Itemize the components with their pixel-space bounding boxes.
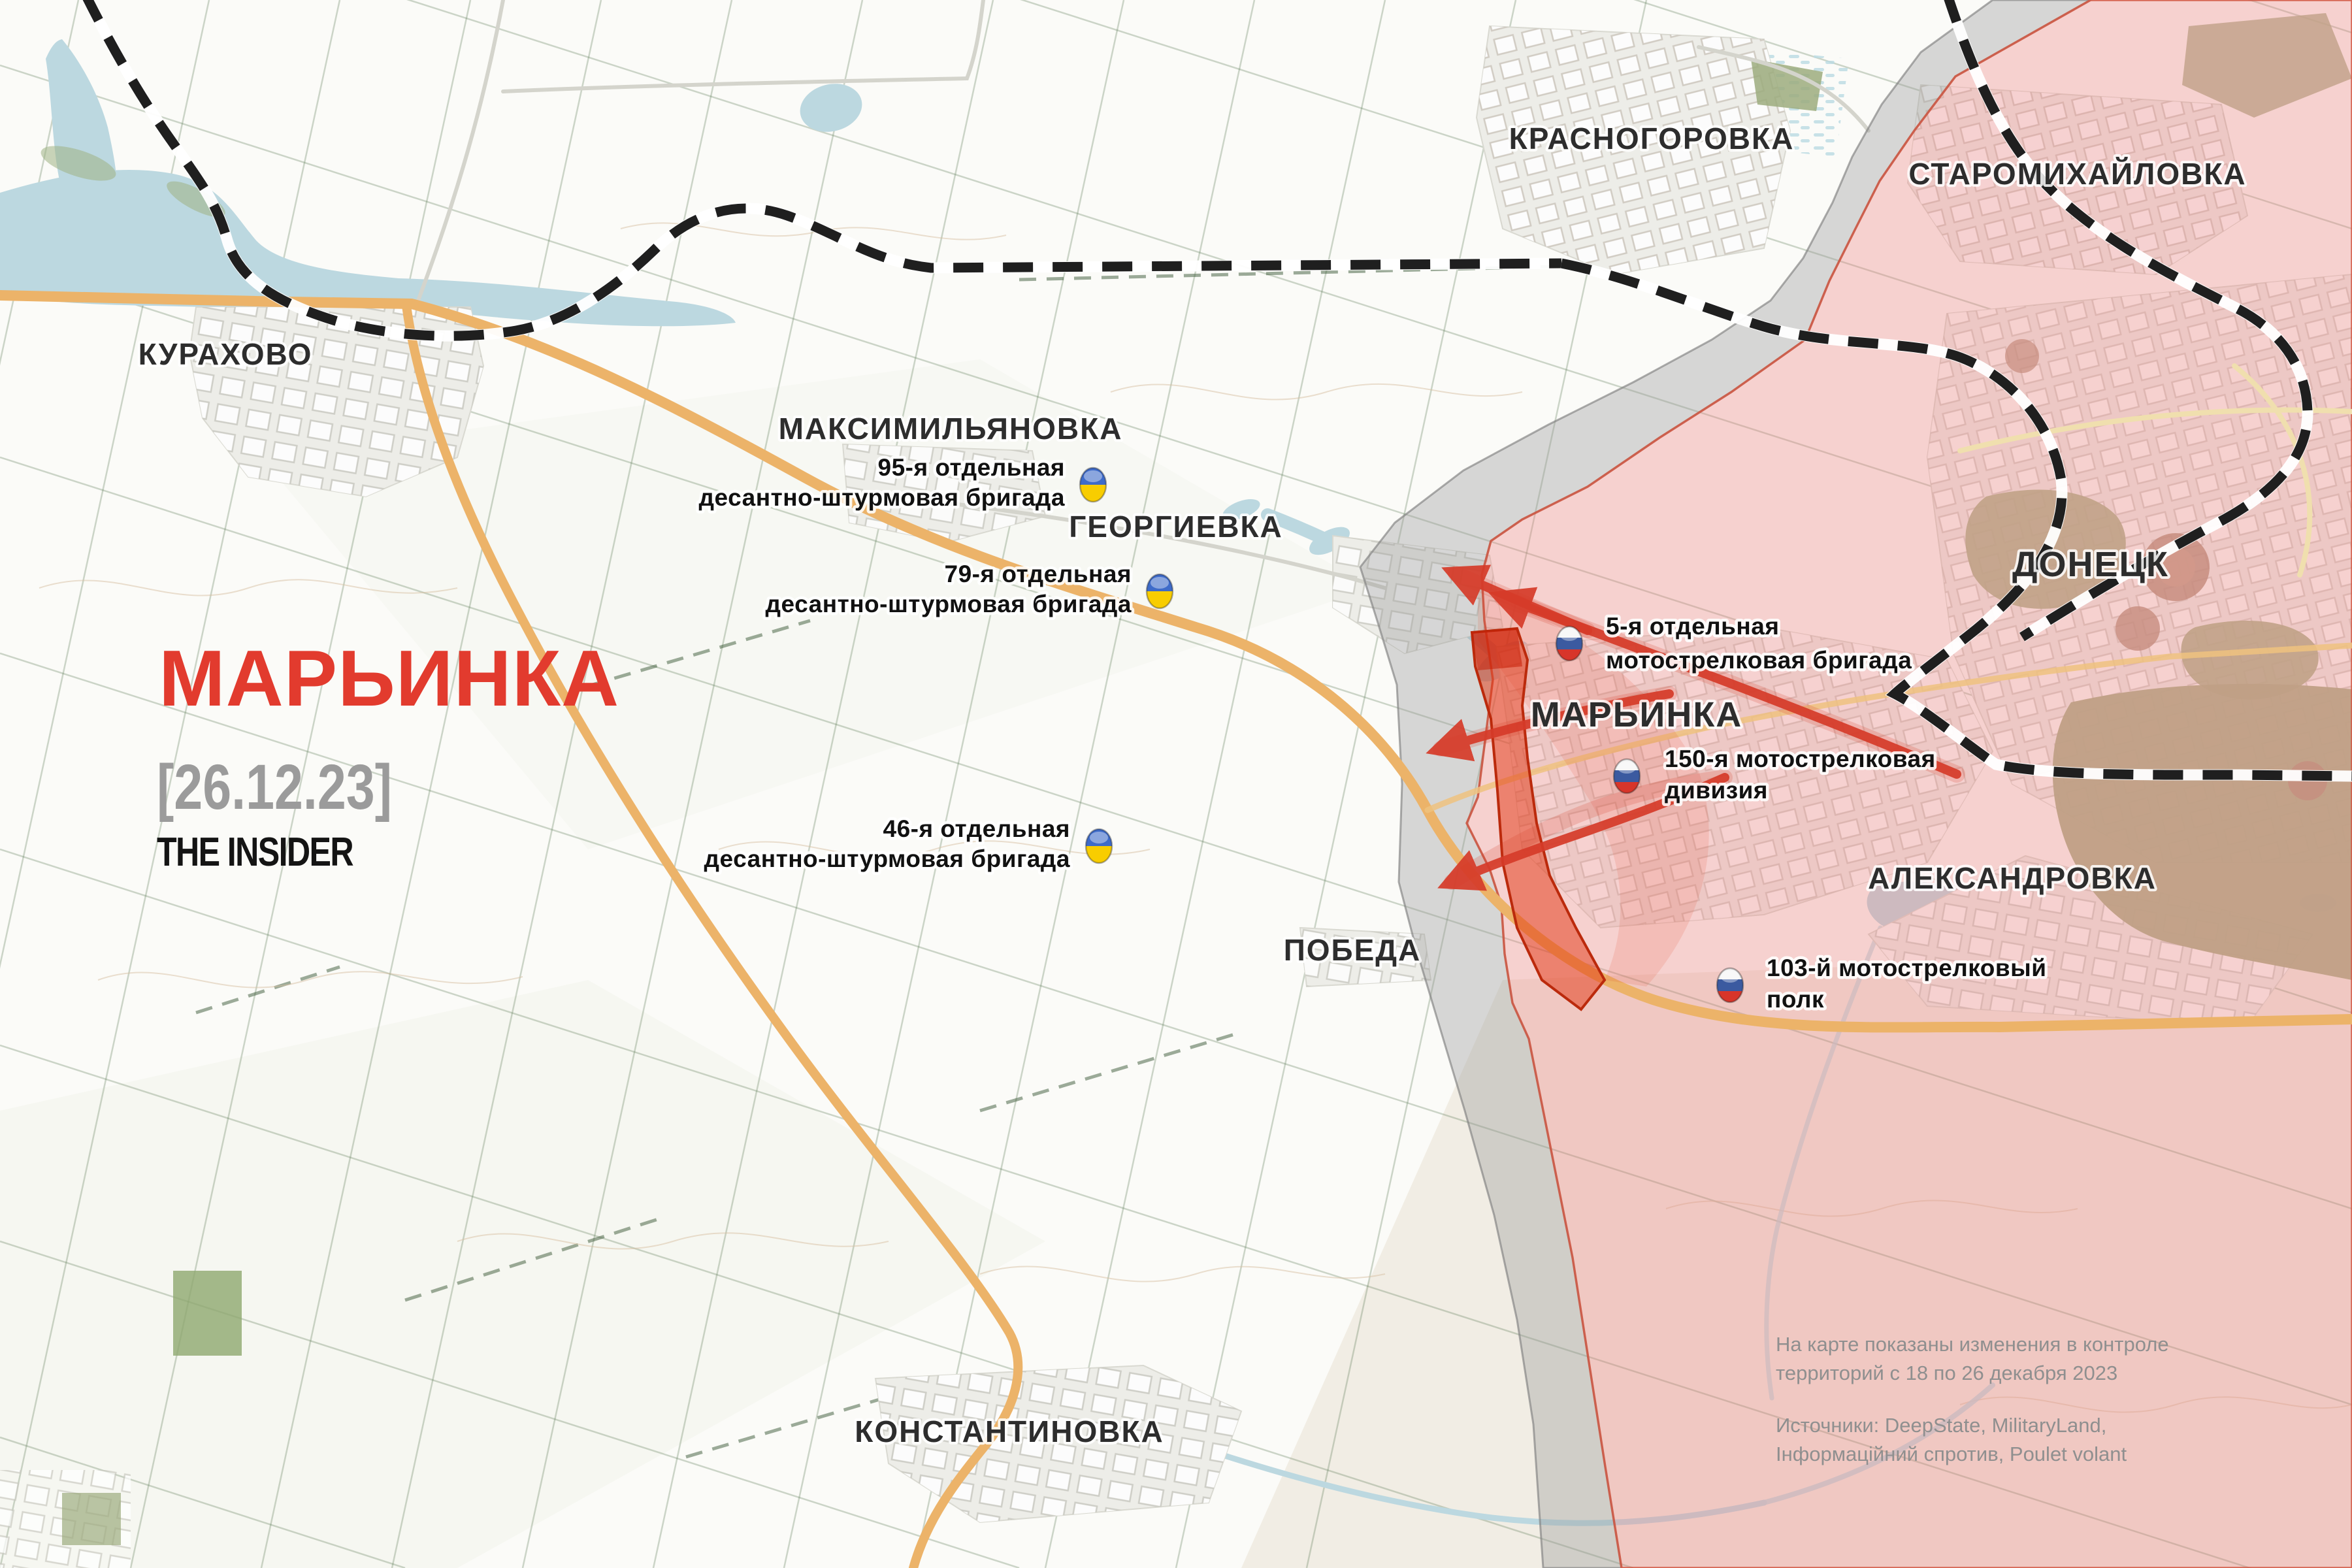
unit-label-line2: десантно-штурмовая бригада bbox=[704, 845, 1070, 872]
captured-area-core bbox=[1472, 629, 1522, 670]
unit-label-line1: 150-я мотострелковая bbox=[1665, 745, 1936, 772]
map-canvas: КУРАХОВО КРАСНОГОРОВКА СТАРОМИХАЙЛОВКА М… bbox=[0, 0, 2352, 1568]
city-label-kurakhovo: КУРАХОВО bbox=[139, 337, 313, 371]
city-label-marinka: МАРЬИНКА bbox=[1531, 695, 1743, 734]
city-label-donetsk: ДОНЕЦК bbox=[2012, 545, 2169, 584]
city-label-staromykhailivka: СТАРОМИХАЙЛОВКА bbox=[1908, 157, 2246, 191]
unit-label-line1: 46-я отдельная bbox=[883, 815, 1071, 842]
insider-logo: THE INSIDER bbox=[157, 830, 353, 875]
unit-label-line1: 103-й мотострелковый bbox=[1767, 955, 2047, 981]
map-date: [26.12.23] bbox=[157, 751, 392, 823]
city-label-krasnohorivka: КРАСНОГОРОВКА bbox=[1509, 122, 1795, 155]
unit-label-line2: мотострелковая бригада bbox=[1606, 647, 1912, 674]
unit-label-line2: десантно-штурмовая бригада bbox=[766, 591, 1132, 617]
city-label-kostiantynivka: КОНСТАНТИНОВКА bbox=[855, 1414, 1164, 1448]
unit-label-line2: десантно-штурмовая бригада bbox=[699, 484, 1065, 511]
note-line: территорий с 18 по 26 декабря 2023 bbox=[1776, 1362, 2117, 1384]
forest-patch bbox=[173, 1271, 242, 1356]
unit-label-line1: 5-я отдельная bbox=[1606, 613, 1779, 640]
note-line: Источники: DeepState, MilitaryLand, bbox=[1776, 1414, 2106, 1437]
city-label-pobieda: ПОБЕДА bbox=[1284, 933, 1422, 967]
city-label-maksymilianivka: МАКСИМИЛЬЯНОВКА bbox=[779, 412, 1123, 446]
map-stage: КУРАХОВО КРАСНОГОРОВКА СТАРОМИХАЙЛОВКА М… bbox=[0, 0, 2352, 1568]
unit-label-line1: 95-я отдельная bbox=[878, 454, 1066, 481]
note-line: На карте показаны изменения в контроле bbox=[1776, 1333, 2169, 1356]
forest-patch bbox=[62, 1493, 121, 1545]
unit-label-line1: 79-я отдельная bbox=[945, 561, 1132, 587]
unit-label-line2: полк bbox=[1767, 986, 1824, 1013]
city-label-heorhiivka: ГЕОРГИЕВКА bbox=[1069, 510, 1283, 544]
note-line: Інформаційний спротив, Poulet volant bbox=[1776, 1443, 2127, 1465]
unit-label-line2: дивизия bbox=[1665, 777, 1768, 804]
map-title: МАРЬИНКА bbox=[159, 634, 619, 723]
city-label-oleksandrivka: АЛЕКСАНДРОВКА bbox=[1868, 861, 2157, 895]
